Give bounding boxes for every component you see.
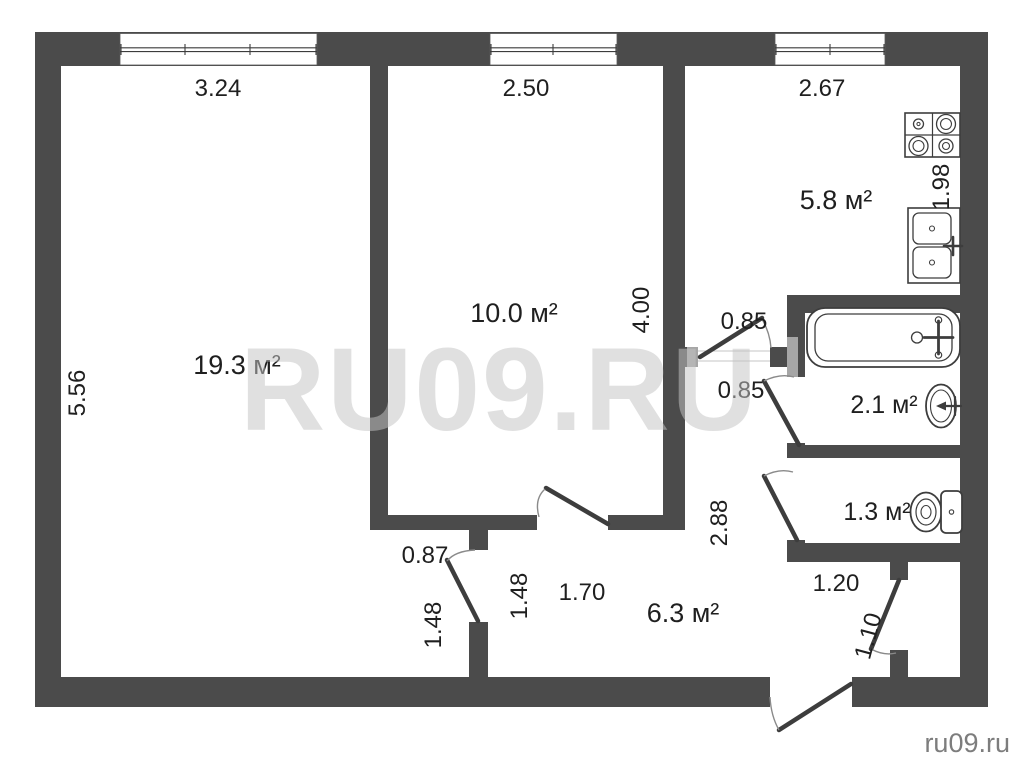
- dim-bedroom-width: 2.50: [503, 75, 550, 102]
- wall-wc-bottom: [787, 543, 960, 562]
- watermark-corner: ru09.ru: [924, 728, 1010, 758]
- dim-living-width: 3.24: [195, 75, 242, 102]
- wall-bath-wc-divider: [787, 445, 960, 458]
- wall-outer-left: [35, 32, 61, 707]
- wall-outer-right: [960, 32, 988, 707]
- kitchen-label: 5.8 м²: [800, 185, 873, 215]
- watermark-center: RU09.RU: [240, 324, 759, 456]
- kitchen-sink-icon: [908, 208, 962, 283]
- wall-living-bedroom: [370, 60, 388, 530]
- dim-living-door-offset: 1.48: [420, 602, 447, 649]
- toilet-icon: [911, 491, 963, 533]
- bathroom-label: 2.1 м²: [850, 391, 917, 419]
- window-bedroom: [490, 34, 617, 66]
- dim-kitchen-depth: 1.98: [928, 164, 955, 211]
- window-kitchen: [775, 34, 885, 66]
- stove-icon: [905, 113, 960, 157]
- wall-living-hall-lower: [469, 622, 488, 677]
- bathtub-icon: [807, 308, 960, 367]
- floor-plan-page: 3.24 2.50 2.67 5.56 4.00 1.98 0.85 0.85 …: [0, 0, 1024, 768]
- dim-vestibule-door: 1.10: [849, 610, 887, 662]
- dim-living-height: 5.56: [64, 370, 91, 417]
- dim-bedroom-door: 1.70: [559, 579, 606, 606]
- wc-label: 1.3 м²: [843, 498, 910, 526]
- wall-kitchen-bottom-right: [770, 347, 787, 367]
- wall-bedroom-bottom-left: [370, 515, 537, 530]
- living-door: [447, 550, 478, 621]
- dim-vestibule-width: 1.20: [813, 570, 860, 597]
- dim-kitchen-width: 2.67: [799, 75, 846, 102]
- dim-hallway-width: 1.48: [506, 573, 533, 620]
- dim-hallway-length: 2.88: [706, 500, 733, 547]
- floor-plan-svg: 3.24 2.50 2.67 5.56 4.00 1.98 0.85 0.85 …: [0, 0, 1024, 768]
- wall-bedroom-hall: [663, 60, 685, 530]
- bathroom-basin-icon: [926, 385, 961, 428]
- bedroom-door: [537, 488, 608, 524]
- wall-bedroom-bottom-right: [608, 515, 685, 530]
- bathroom-door: [764, 376, 799, 445]
- wall-junction-stub: [469, 515, 488, 550]
- wall-vestibule-stub-top: [890, 562, 908, 580]
- hallway-label: 6.3 м²: [647, 598, 720, 628]
- wc-door: [764, 471, 797, 540]
- window-living: [120, 34, 317, 66]
- lintel-bathroom-door: [787, 337, 798, 377]
- dim-living-door: 0.87: [402, 542, 449, 569]
